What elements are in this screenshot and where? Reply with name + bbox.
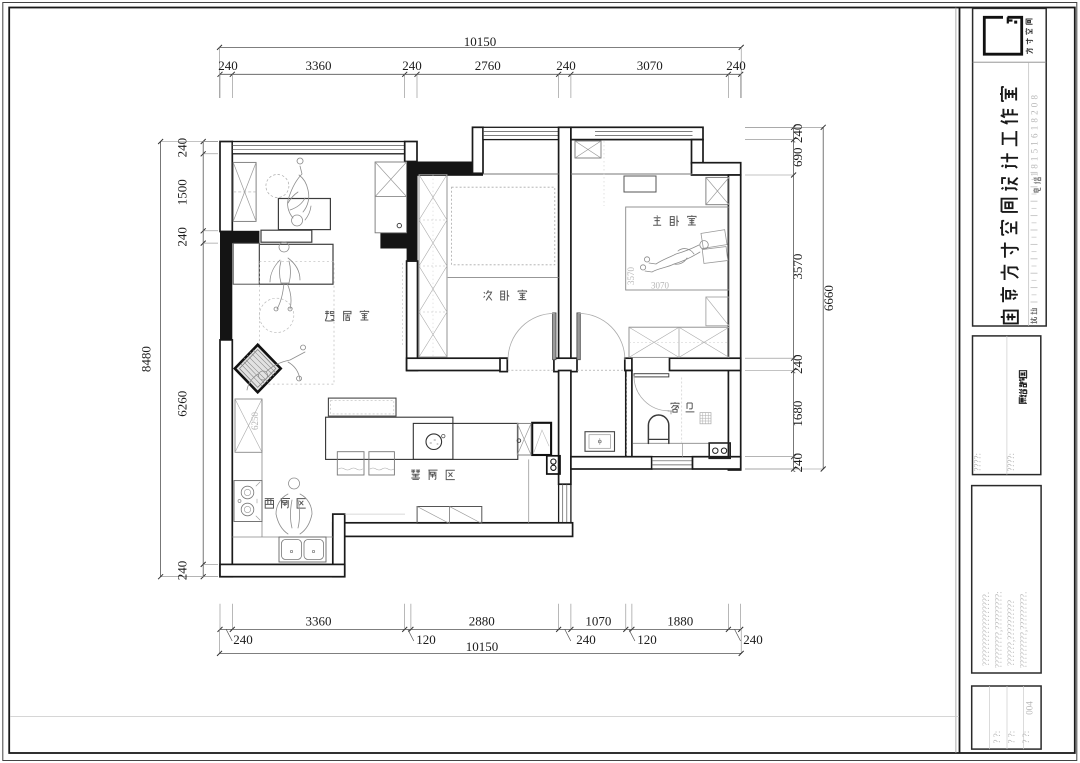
svg-text:240: 240 bbox=[790, 355, 805, 375]
svg-text:120: 120 bbox=[416, 632, 436, 647]
svg-text:2880: 2880 bbox=[469, 614, 495, 629]
svg-text:10150: 10150 bbox=[466, 639, 499, 654]
svg-text:240: 240 bbox=[402, 58, 422, 73]
svg-text:1880: 1880 bbox=[667, 614, 693, 629]
svg-text:????:: ????: bbox=[973, 453, 983, 471]
svg-text:1680: 1680 bbox=[790, 401, 805, 427]
svg-text:????:: ????: bbox=[1006, 453, 1016, 471]
svg-text:??????,??????????: ??????,?????????? bbox=[1006, 600, 1016, 666]
svg-text:240: 240 bbox=[233, 632, 253, 647]
svg-text:3570: 3570 bbox=[790, 254, 805, 280]
svg-text:? ?:: ? ?: bbox=[1007, 731, 1017, 744]
svg-text:240: 240 bbox=[790, 124, 805, 144]
svg-text:240: 240 bbox=[218, 58, 238, 73]
svg-text:240: 240 bbox=[790, 453, 805, 473]
svg-text:? ?:: ? ?: bbox=[1021, 731, 1031, 744]
svg-text:18151618208: 18151618208 bbox=[1029, 92, 1039, 177]
svg-text:8480: 8480 bbox=[139, 346, 154, 372]
svg-text:240: 240 bbox=[556, 58, 576, 73]
svg-text:3570: 3570 bbox=[626, 267, 636, 286]
svg-text:004: 004 bbox=[1025, 701, 1035, 715]
svg-text:1070: 1070 bbox=[585, 614, 611, 629]
svg-text:6660: 6660 bbox=[821, 285, 836, 311]
svg-text:1500: 1500 bbox=[175, 179, 190, 205]
svg-text:6260: 6260 bbox=[175, 391, 190, 417]
svg-text:10150: 10150 bbox=[464, 34, 497, 49]
svg-text:3070: 3070 bbox=[637, 58, 663, 73]
svg-text:?????????,?????????.: ?????????,?????????. bbox=[1018, 592, 1028, 668]
svg-text:240: 240 bbox=[576, 632, 596, 647]
svg-text:240: 240 bbox=[726, 58, 746, 73]
svg-text:120: 120 bbox=[637, 632, 657, 647]
svg-text:3360: 3360 bbox=[306, 614, 332, 629]
svg-text:3070: 3070 bbox=[651, 281, 670, 291]
svg-text:6250: 6250 bbox=[250, 412, 260, 431]
svg-text:690: 690 bbox=[790, 148, 805, 168]
svg-text:??????????????????.: ??????????????????. bbox=[981, 592, 991, 666]
svg-text:2760: 2760 bbox=[475, 58, 501, 73]
svg-text:?????????,?????????:: ?????????,?????????: bbox=[994, 591, 1004, 668]
svg-text:3360: 3360 bbox=[306, 58, 332, 73]
svg-text:? ?:: ? ?: bbox=[992, 731, 1002, 744]
svg-text:240: 240 bbox=[175, 561, 190, 581]
svg-text:240: 240 bbox=[175, 138, 190, 158]
svg-text:240: 240 bbox=[175, 227, 190, 247]
svg-text:240: 240 bbox=[743, 632, 763, 647]
